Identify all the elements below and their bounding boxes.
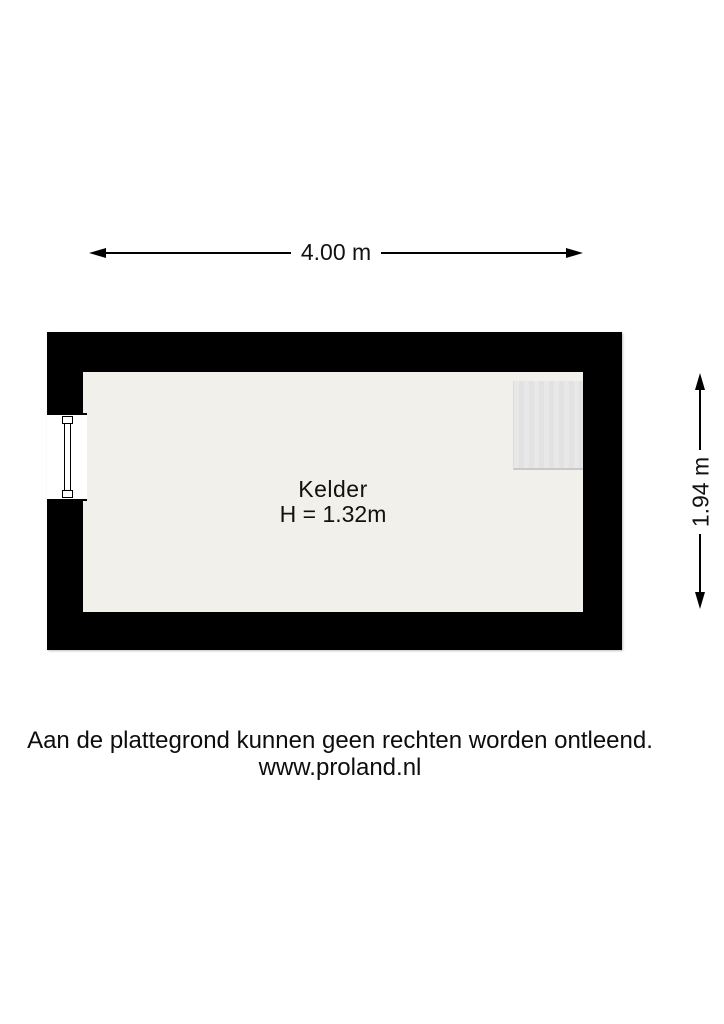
width-dimension-label: 4.00 m: [291, 243, 381, 261]
height-dimension-label: 1.94 m: [688, 457, 715, 527]
dimension-line: [699, 390, 701, 450]
dimension-line: [106, 252, 291, 254]
window-glazing: [64, 424, 71, 490]
width-dimension: 4.00 m: [89, 244, 583, 262]
room-ceiling-height-label: H = 1.32m: [183, 502, 483, 527]
arrow-right-icon: [566, 248, 583, 258]
window-frame-cap-top: [62, 416, 73, 424]
arrow-down-icon: [695, 592, 705, 609]
stairs-block: [513, 381, 583, 470]
disclaimer-text: Aan de plattegrond kunnen geen rechten w…: [0, 727, 680, 754]
floorplan-page: 4.00 m Kelder H = 1.32m 1.94 m Aan de pl…: [0, 0, 724, 1024]
arrow-left-icon: [89, 248, 106, 258]
footer: Aan de plattegrond kunnen geen rechten w…: [0, 727, 680, 781]
dimension-line: [381, 252, 566, 254]
window-frame: [62, 416, 73, 498]
dimension-line: [699, 534, 701, 592]
window-symbol: [47, 413, 87, 501]
website-text: www.proland.nl: [0, 754, 680, 781]
room-label: Kelder H = 1.32m: [183, 477, 483, 527]
room-name: Kelder: [183, 477, 483, 502]
window-frame-cap-bottom: [62, 490, 73, 498]
arrow-up-icon: [695, 373, 705, 390]
